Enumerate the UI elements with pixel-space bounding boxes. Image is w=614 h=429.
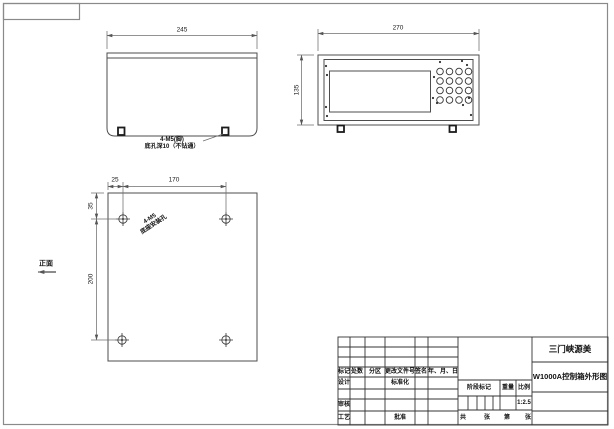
tb-scale-value: 1:2.5 xyxy=(517,400,531,406)
bottom-view xyxy=(38,182,257,361)
front-view-height-dim: 135 xyxy=(294,85,301,96)
tb-sheets-total-unit: 张 xyxy=(484,415,490,421)
side-note-leader xyxy=(203,134,223,141)
side-view-feet xyxy=(118,128,229,136)
bottom-view-hspan-dim: 170 xyxy=(169,177,180,184)
front-view xyxy=(297,29,479,132)
display-window xyxy=(330,71,431,112)
front-view-width-dim: 270 xyxy=(393,25,404,32)
side-view-note-line2: 底孔深10（不钻通） xyxy=(145,144,200,151)
tb-header-zone: 分区 xyxy=(369,369,381,375)
tb-stage-mark-label: 阶段标记 xyxy=(467,385,491,391)
side-view-dimensions xyxy=(107,31,257,141)
tb-review-label: 审核 xyxy=(338,402,350,408)
keypad-buttons xyxy=(437,68,472,103)
tb-header-change-doc: 更改文件号 xyxy=(385,369,415,375)
bottom-view-offset-dim: 25 xyxy=(111,177,118,184)
front-view-feet xyxy=(338,126,457,133)
tb-approve-label: 批准 xyxy=(394,415,406,421)
cad-drawing-sheet: 245 4-M5(脚) 底孔深10（不钻通） 270 135 正面 25 170… xyxy=(0,0,614,429)
side-view-width-dim: 245 xyxy=(177,27,188,34)
bottom-view-top-offset-dim: 35 xyxy=(88,202,95,209)
drawing-canvas xyxy=(0,0,614,429)
border-frame xyxy=(4,4,608,425)
tb-standardization-label: 标准化 xyxy=(391,380,409,386)
bottom-view-dimensions xyxy=(91,182,226,340)
tb-weight-label: 重量 xyxy=(502,385,514,391)
mounting-holes xyxy=(115,212,233,347)
tb-header-mark: 标记 xyxy=(338,369,350,375)
frame-corner-block xyxy=(4,4,80,20)
side-view xyxy=(107,31,257,141)
tb-sheets-total-label: 共 xyxy=(460,415,466,421)
front-face-label: 正面 xyxy=(39,261,53,268)
tb-design-label: 设计 xyxy=(338,380,350,386)
tb-sheet-no-unit: 张 xyxy=(525,415,531,421)
company-name: 三门峡源美 xyxy=(549,346,592,352)
tb-process-label: 工艺 xyxy=(338,415,350,421)
tb-header-count: 处数 xyxy=(351,369,363,375)
tb-header-signature: 签名 xyxy=(415,369,427,375)
side-view-note-line1: 4-M5(脚) xyxy=(160,137,184,144)
tb-header-date: 年、月、日 xyxy=(428,369,458,375)
tb-sheet-no-label: 第 xyxy=(504,415,510,421)
tb-scale-label: 比例 xyxy=(518,385,530,391)
bottom-view-vspan-dim: 200 xyxy=(88,274,95,285)
drawing-title: W1000A控制箱外形图 xyxy=(533,374,607,380)
